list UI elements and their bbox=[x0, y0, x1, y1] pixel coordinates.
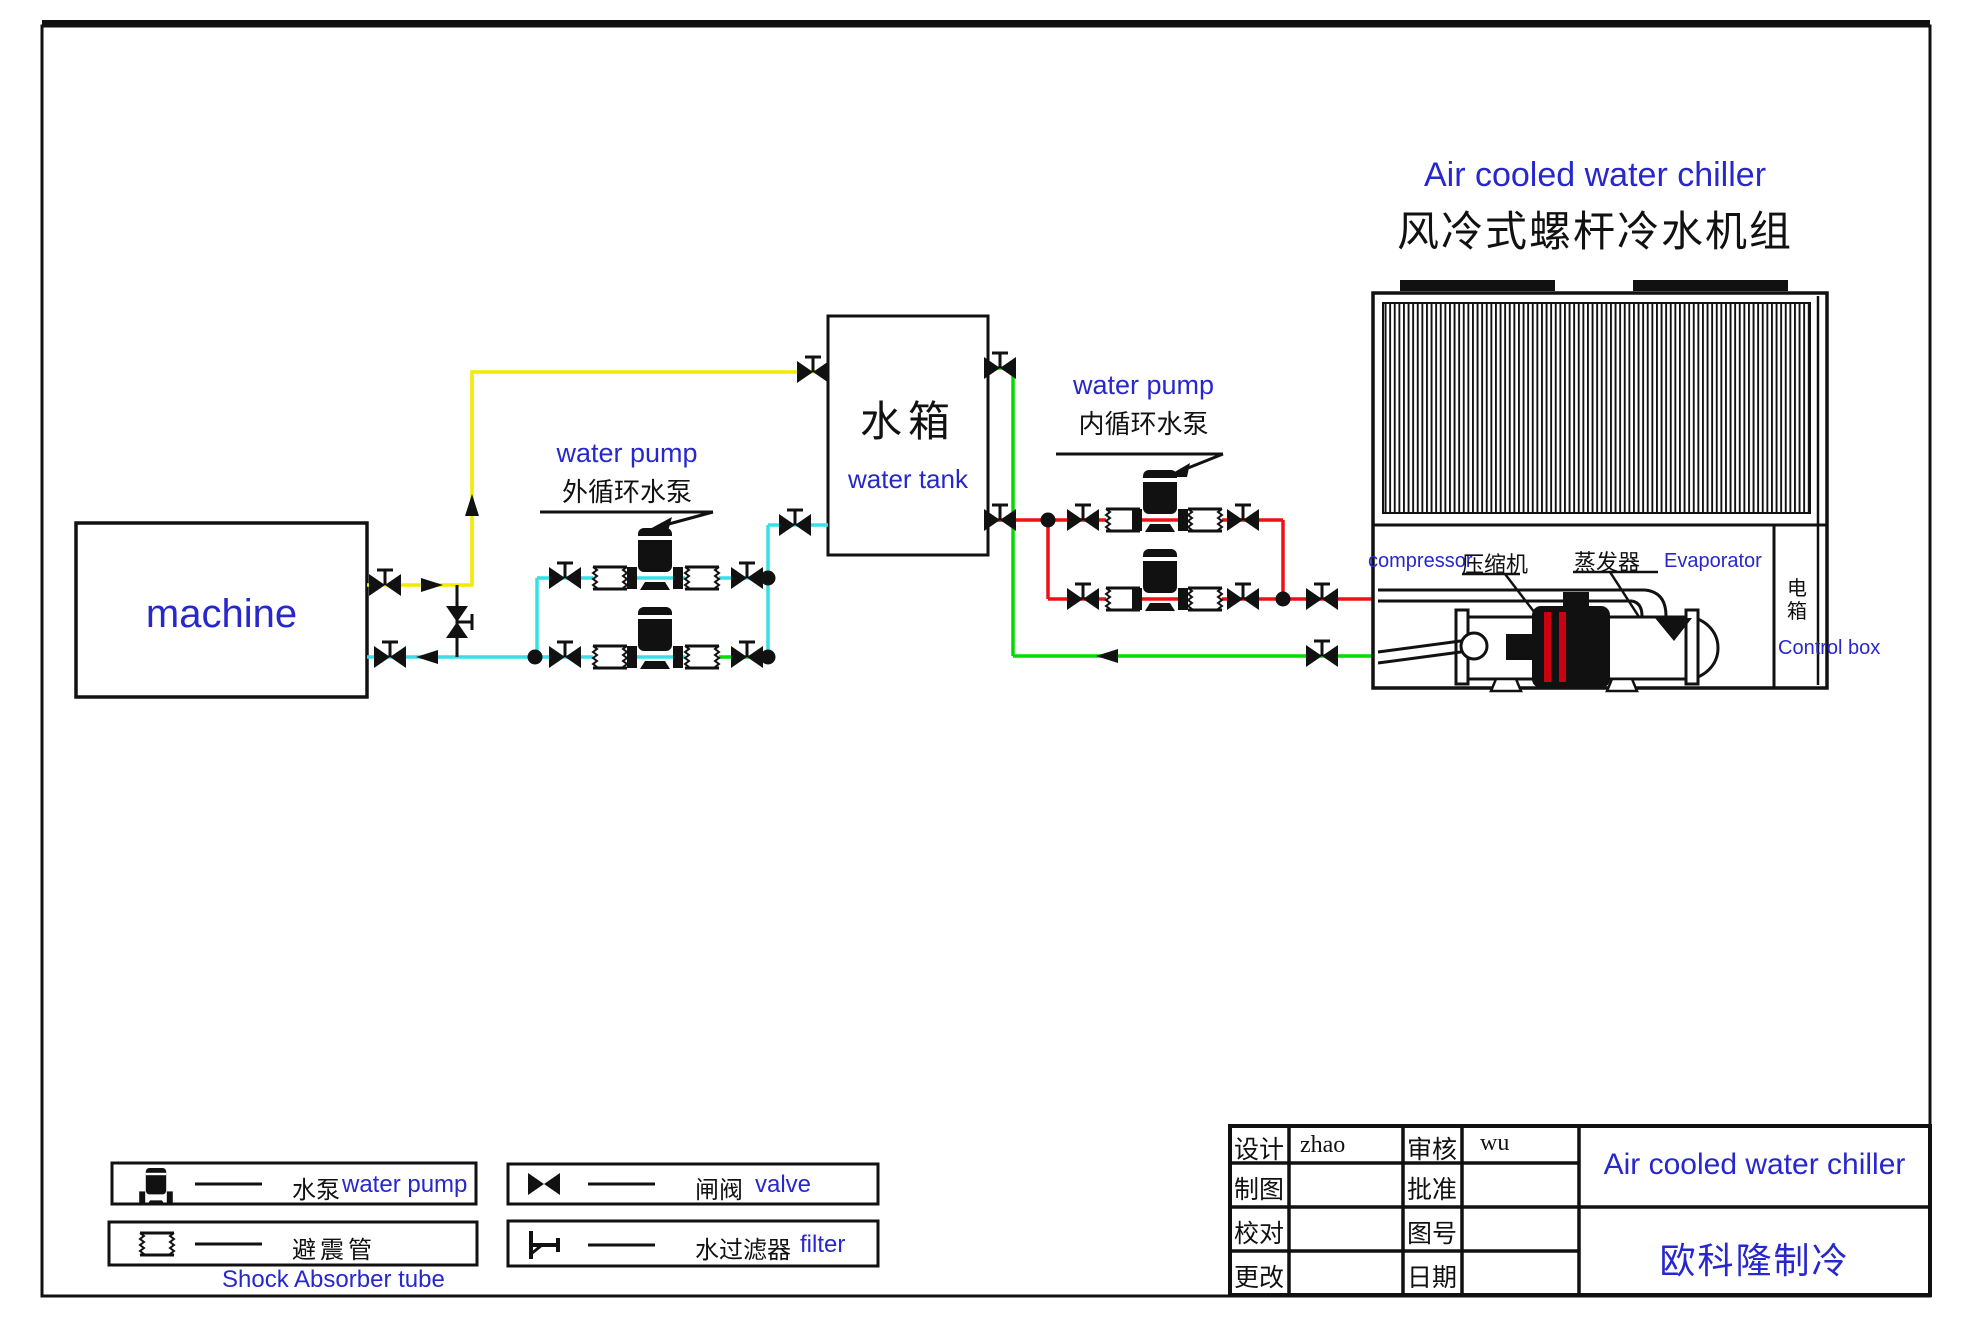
valve-icon bbox=[446, 606, 472, 638]
valve-icon bbox=[731, 563, 763, 589]
flow-arrow-icon bbox=[421, 578, 443, 592]
water-pump-icon bbox=[1132, 549, 1188, 611]
external-pump-label-zh: 外循环水泵 bbox=[521, 472, 733, 509]
shock-absorber-icon bbox=[685, 646, 719, 668]
water-tank-label-zh: 水箱 bbox=[828, 388, 988, 449]
legend-shock-absorber-zh: 避震管 bbox=[292, 1230, 376, 1265]
shock-absorber-icon bbox=[685, 567, 719, 589]
valve-icon bbox=[1067, 505, 1099, 531]
condenser-coil bbox=[1383, 303, 1810, 513]
pipe-junction bbox=[761, 571, 776, 586]
title-block-label: 设计 bbox=[1234, 1130, 1284, 1166]
legend-shock-absorber-en: Shock Absorber tube bbox=[222, 1266, 445, 1294]
pipe-junction bbox=[1276, 592, 1291, 607]
valve-icon bbox=[1227, 505, 1259, 531]
flow-arrow-icon bbox=[416, 650, 438, 664]
title-block-label: 批准 bbox=[1407, 1170, 1457, 1206]
title-block-label: 更改 bbox=[1234, 1258, 1284, 1294]
shock-absorber-icon bbox=[1188, 509, 1222, 531]
fan-grille bbox=[1400, 280, 1555, 291]
drawing-title-en: Air cooled water chiller bbox=[1400, 156, 1790, 195]
external-pump-label-en: water pump bbox=[521, 438, 733, 469]
legend-filter-en: filter bbox=[800, 1231, 845, 1259]
title-block-label: 图号 bbox=[1407, 1214, 1457, 1250]
valve-icon bbox=[1306, 641, 1338, 667]
internal-pump-label-en: water pump bbox=[1046, 370, 1241, 401]
wavy-rect-icon bbox=[140, 1233, 174, 1255]
flow-arrow-icon bbox=[1096, 649, 1118, 663]
external-pump-leader bbox=[540, 512, 713, 531]
strainer-icon bbox=[531, 1231, 558, 1259]
valve-icon bbox=[1067, 584, 1099, 610]
evaporator-label-en: Evaporator bbox=[1664, 550, 1762, 573]
pipe-junction bbox=[761, 650, 776, 665]
legend-water-pump-en: water pump bbox=[342, 1171, 467, 1199]
control-box-label-en: Control box bbox=[1778, 637, 1880, 660]
fan-grille bbox=[1633, 280, 1788, 291]
valve-icon bbox=[779, 510, 811, 536]
shock-absorber-icon bbox=[593, 567, 627, 589]
pipe-junction bbox=[1041, 513, 1056, 528]
pipe-junction bbox=[528, 650, 543, 665]
water-pump-icon bbox=[627, 607, 683, 669]
internal-pump-leader bbox=[1056, 454, 1223, 477]
shock-absorber-icon bbox=[1188, 588, 1222, 610]
flow-arrow-icon bbox=[465, 494, 479, 516]
chilled-supply-pipe-red bbox=[988, 520, 1373, 599]
cool-water-pipe-cyan bbox=[367, 525, 828, 657]
valve-icon bbox=[1306, 584, 1338, 610]
valve-icon bbox=[797, 357, 829, 383]
valve-icon bbox=[369, 570, 401, 596]
pump-cylinder-icon bbox=[139, 1168, 173, 1205]
water-pump-icon bbox=[627, 528, 683, 590]
title-block-value: wu bbox=[1480, 1130, 1509, 1157]
title-block-value: zhao bbox=[1300, 1132, 1345, 1159]
bowtie-valve-icon bbox=[528, 1173, 560, 1195]
valve-icon bbox=[731, 642, 763, 668]
title-block-label: 审核 bbox=[1407, 1130, 1457, 1166]
title-block-label: 制图 bbox=[1234, 1170, 1284, 1206]
title-block-label: 校对 bbox=[1234, 1214, 1284, 1250]
valve-icon bbox=[549, 563, 581, 589]
drawing-title-zh: 风冷式螺杆冷水机组 bbox=[1390, 198, 1800, 259]
internal-pump-label-zh: 内循环水泵 bbox=[1046, 404, 1241, 441]
valve-icon bbox=[549, 642, 581, 668]
control-box-label-zh: 电箱 bbox=[1784, 578, 1810, 624]
water-tank-label-en: water tank bbox=[828, 464, 988, 495]
compressor-label-en: compressor bbox=[1368, 550, 1472, 573]
compressor-label-zh: 压缩机 bbox=[1462, 547, 1528, 579]
title-block-company: 欧科隆制冷 bbox=[1579, 1232, 1930, 1284]
legend-filter-zh: 水过滤器 bbox=[695, 1230, 791, 1265]
valve-icon bbox=[1227, 584, 1259, 610]
title-block-label: 日期 bbox=[1407, 1258, 1457, 1294]
piping-diagram-canvas: Air cooled water chiller 风冷式螺杆冷水机组 machi… bbox=[0, 0, 1965, 1323]
valve-icon bbox=[374, 642, 406, 668]
machine-label: machine bbox=[76, 592, 367, 637]
chiller-unit bbox=[1373, 280, 1827, 691]
title-block-product: Air cooled water chiller bbox=[1579, 1148, 1930, 1182]
water-pump-icon bbox=[1132, 470, 1188, 532]
evaporator-label-zh: 蒸发器 bbox=[1574, 545, 1640, 577]
legend-water-pump-zh: 水泵 bbox=[292, 1170, 340, 1205]
legend-valve-en: valve bbox=[755, 1171, 811, 1199]
legend-valve-zh: 闸阀 bbox=[695, 1170, 743, 1205]
shock-absorber-icon bbox=[593, 646, 627, 668]
